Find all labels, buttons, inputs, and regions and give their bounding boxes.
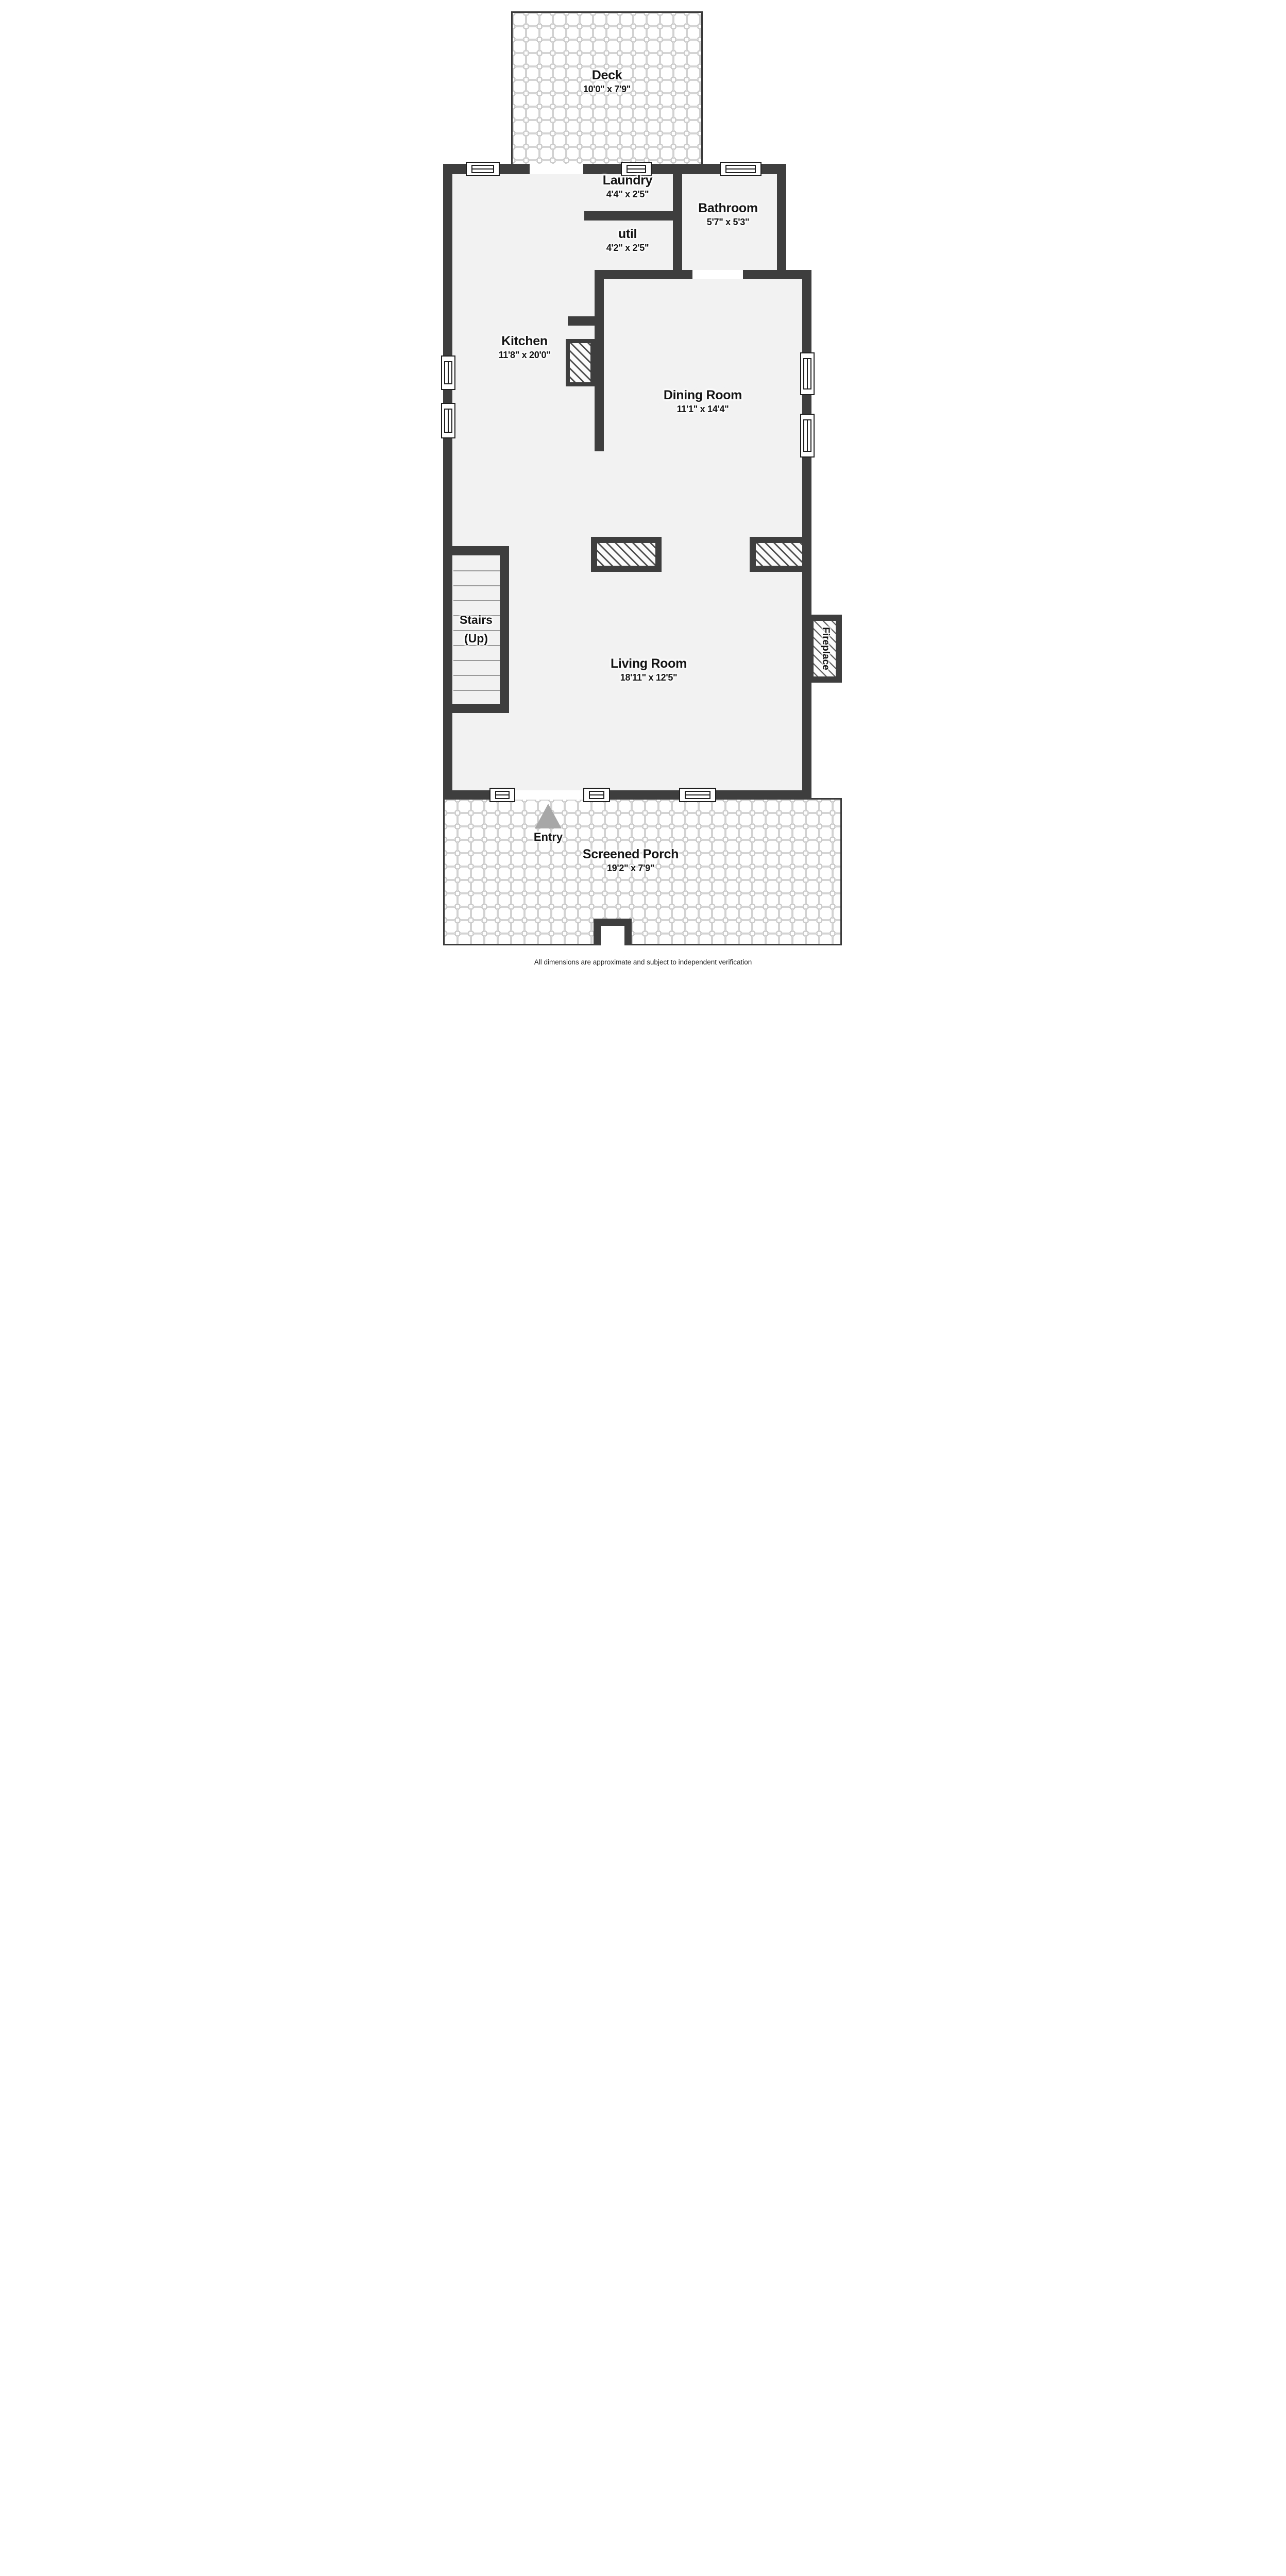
porch-edge-left (443, 800, 445, 945)
wall-right-main (802, 270, 811, 800)
door-opening-deck (530, 164, 583, 174)
room-label-bathroom: Bathroom 5'7" x 5'3" (698, 201, 758, 229)
knee-wall-right-hatch (756, 543, 802, 566)
window-living-bottom-2 (583, 788, 610, 802)
stairs-line1: Stairs (460, 611, 493, 630)
window-kitchen-left-2 (441, 403, 455, 438)
room-label-util: util 4'2" x 2'5" (606, 227, 649, 255)
kitchen-counter-hatch (570, 343, 590, 382)
porch-edge-right (840, 800, 842, 945)
stairs-line2: (Up) (460, 630, 493, 648)
stair-tread (453, 690, 500, 691)
living-dims: 18'11" x 12'5" (611, 671, 687, 684)
porch-edge-bottom (443, 944, 842, 945)
entry-arrow-icon (535, 804, 562, 828)
entry-name: Entry (534, 831, 563, 844)
deck-dims: 10'0" x 7'9" (583, 82, 631, 96)
room-label-laundry: Laundry 4'4" x 2'5" (603, 173, 653, 201)
window-dining-right-1 (800, 352, 815, 395)
util-dims: 4'2" x 2'5" (606, 241, 649, 255)
room-label-kitchen: Kitchen 11'8" x 20'0" (499, 334, 551, 362)
porch-name: Screened Porch (583, 847, 679, 861)
stair-tread (453, 585, 500, 586)
util-name: util (606, 227, 649, 241)
room-label-living: Living Room 18'11" x 12'5" (611, 656, 687, 684)
knee-wall-left-hatch (597, 543, 655, 566)
living-name: Living Room (611, 656, 687, 671)
room-label-fireplace: Fireplace (820, 627, 831, 670)
stairs-wall-bottom (452, 704, 509, 713)
porch-door-opening (601, 926, 624, 957)
stairs-wall-right (500, 546, 509, 713)
laundry-dims: 4'4" x 2'5" (603, 188, 653, 201)
deck-name: Deck (583, 68, 631, 82)
window-living-bottom-1 (489, 788, 515, 802)
window-dining-right-2 (800, 414, 815, 457)
dining-dims: 11'1" x 14'4" (664, 402, 742, 416)
stair-tread (453, 675, 500, 676)
wall-left (443, 164, 452, 800)
disclaimer-text: All dimensions are approximate and subje… (429, 958, 857, 966)
room-label-dining: Dining Room 11'1" x 14'4" (664, 388, 742, 416)
porch-edge-top-right (811, 798, 842, 800)
dining-name: Dining Room (664, 388, 742, 402)
stair-tread (453, 600, 500, 601)
wall-laundry-util-partial (584, 211, 682, 221)
bathroom-dims: 5'7" x 5'3" (698, 215, 758, 229)
porch-door-post-right (624, 919, 632, 945)
wall-kitchen-stub (568, 316, 595, 326)
porch-dims: 19'2" x 7'9" (583, 861, 679, 875)
room-label-entry: Entry (534, 831, 563, 844)
stair-tread (453, 660, 500, 661)
wall-kitchen-dining-divider (595, 270, 604, 451)
window-kitchen-top (466, 162, 500, 176)
porch-door-post-left (594, 919, 601, 945)
room-label-deck: Deck 10'0" x 7'9" (583, 68, 631, 96)
bathroom-name: Bathroom (698, 201, 758, 215)
stair-tread (453, 570, 500, 571)
floor-plan: Deck 10'0" x 7'9" Laundry 4'4" x 2'5" ut… (429, 0, 857, 974)
window-bathroom-top (720, 162, 762, 176)
wall-right-upper (777, 164, 786, 270)
window-living-bottom-3 (679, 788, 716, 802)
kitchen-dims: 11'8" x 20'0" (499, 348, 551, 362)
door-opening-bathroom (692, 270, 743, 279)
kitchen-name: Kitchen (499, 334, 551, 348)
room-label-porch: Screened Porch 19'2" x 7'9" (583, 847, 679, 875)
wall-laundry-bathroom-divider (673, 174, 682, 270)
room-label-stairs: Stairs (Up) (460, 611, 493, 648)
laundry-name: Laundry (603, 173, 653, 188)
door-opening-entry (515, 790, 583, 800)
window-kitchen-left-1 (441, 355, 455, 390)
